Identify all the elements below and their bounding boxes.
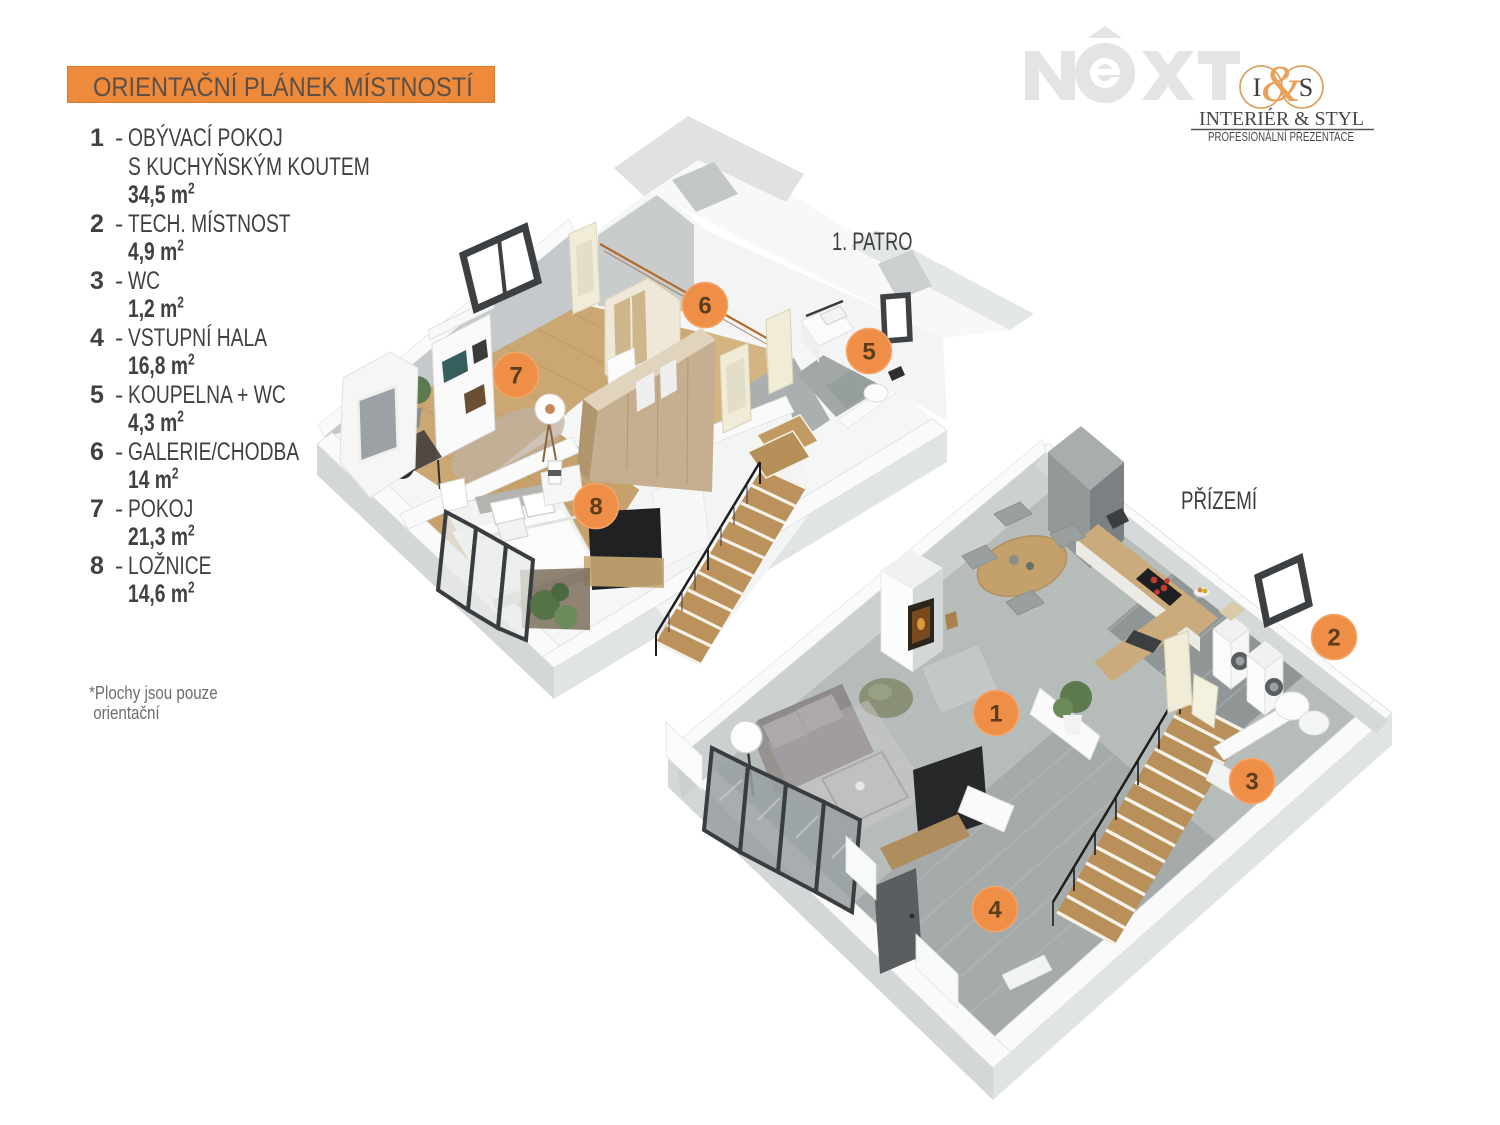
svg-text:6: 6	[698, 293, 711, 320]
svg-text:S: S	[1299, 73, 1313, 102]
svg-text:4: 4	[988, 897, 1002, 924]
svg-text:INTERIÉR & STYL: INTERIÉR & STYL	[1199, 108, 1364, 130]
svg-text:7: 7	[509, 363, 522, 390]
svg-text:2: 2	[1327, 625, 1340, 652]
svg-text:&: &	[1261, 56, 1302, 113]
svg-text:PROFESIONÁLNÍ PREZENTACE: PROFESIONÁLNÍ PREZENTACE	[1208, 129, 1354, 144]
svg-text:8: 8	[589, 494, 602, 521]
svg-text:3: 3	[1245, 769, 1258, 796]
svg-text:5: 5	[862, 339, 875, 366]
svg-text:1: 1	[989, 701, 1002, 728]
svg-text:I: I	[1253, 73, 1262, 102]
